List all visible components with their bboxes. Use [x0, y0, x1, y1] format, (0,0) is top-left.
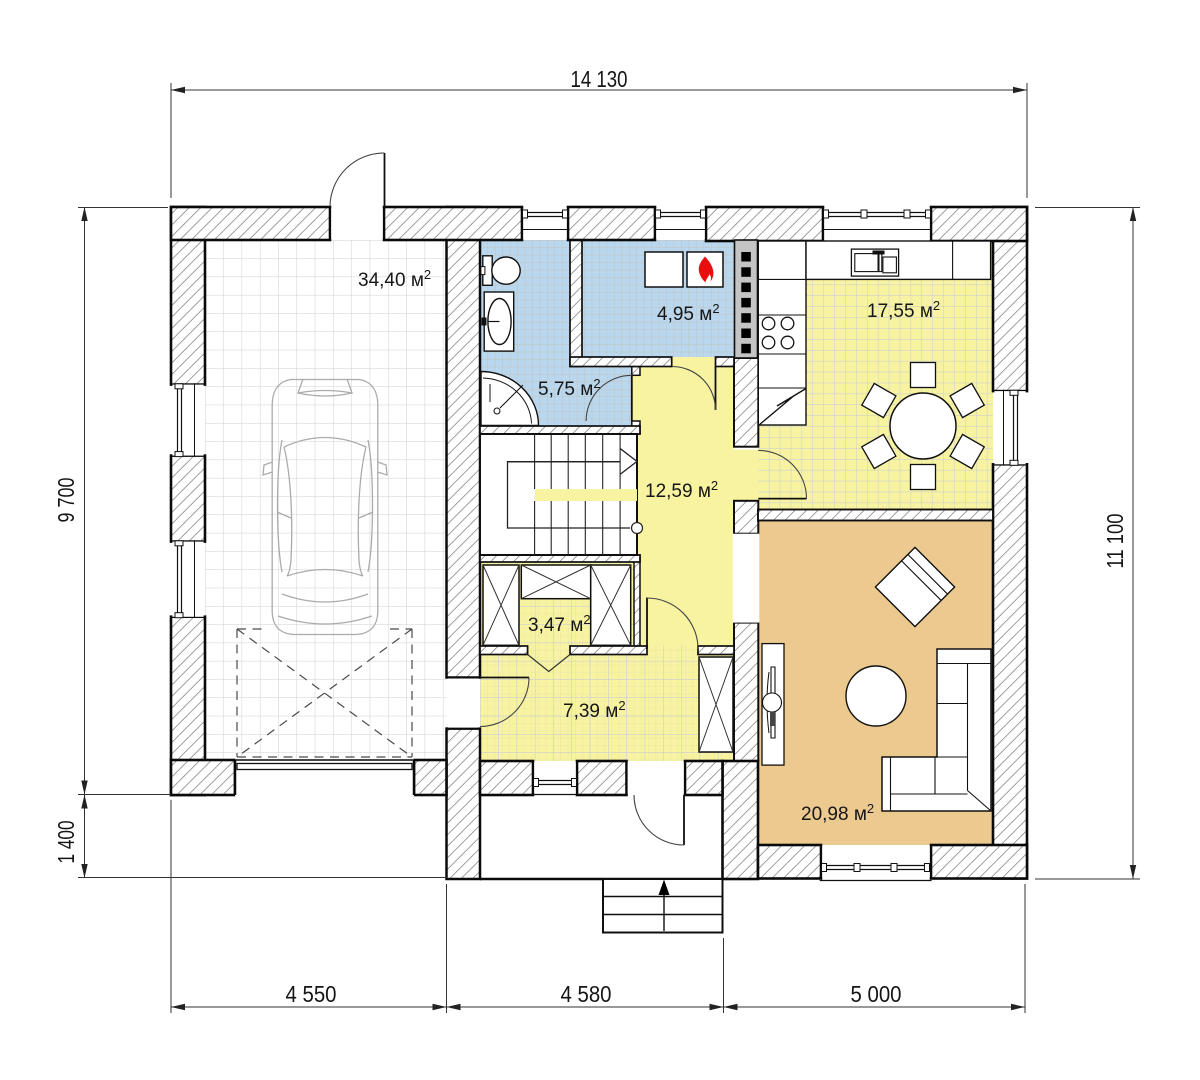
svg-text:5,75 м2: 5,75 м2	[538, 376, 601, 400]
svg-text:4 550: 4 550	[286, 981, 337, 1007]
svg-text:9 700: 9 700	[53, 478, 79, 523]
svg-text:11 100: 11 100	[1102, 514, 1128, 569]
svg-text:17,55 м2: 17,55 м2	[867, 298, 940, 322]
svg-text:4 580: 4 580	[561, 981, 612, 1007]
svg-text:7,39 м2: 7,39 м2	[563, 698, 626, 722]
svg-text:12,59 м2: 12,59 м2	[645, 478, 718, 502]
svg-text:20,98 м2: 20,98 м2	[801, 801, 874, 825]
svg-text:34,40 м2: 34,40 м2	[358, 267, 431, 291]
svg-text:1 400: 1 400	[53, 821, 79, 864]
svg-text:14 130: 14 130	[571, 66, 628, 92]
svg-text:5 000: 5 000	[851, 981, 902, 1007]
svg-text:3,47 м2: 3,47 м2	[528, 612, 591, 636]
svg-text:4,95 м2: 4,95 м2	[657, 301, 720, 325]
